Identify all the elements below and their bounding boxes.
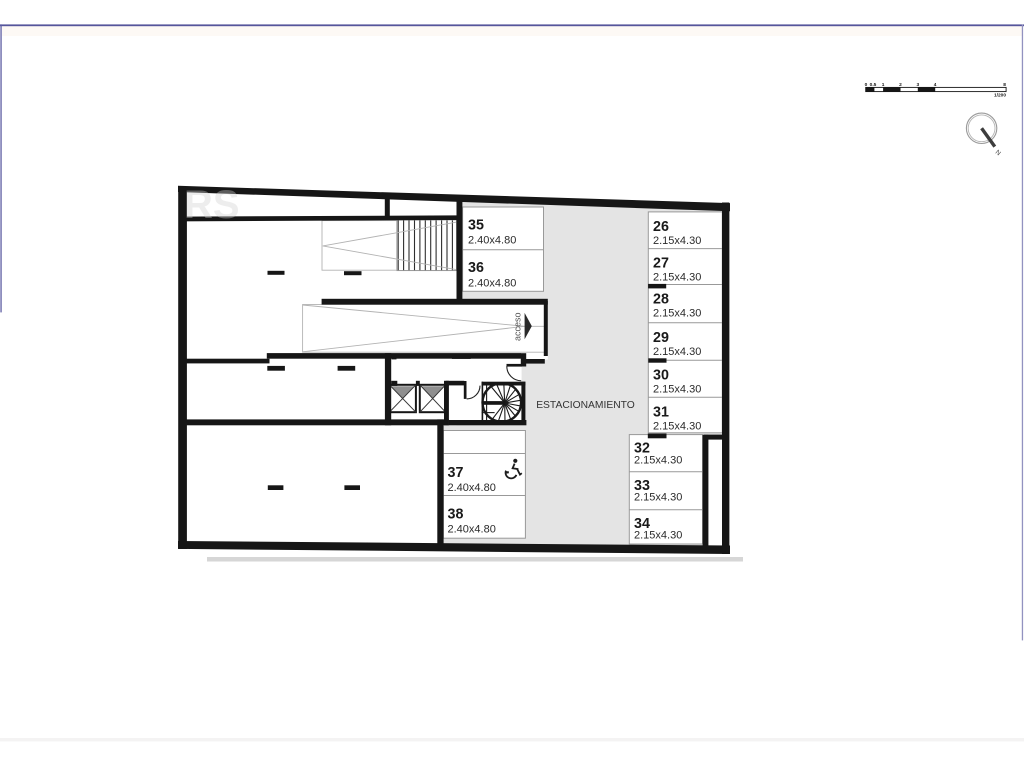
svg-text:26: 26 [653, 219, 669, 235]
svg-text:29: 29 [653, 330, 669, 346]
svg-text:27: 27 [653, 256, 669, 272]
svg-text:35: 35 [468, 217, 484, 233]
svg-text:RS: RS [184, 183, 240, 227]
svg-text:2.15x4.30: 2.15x4.30 [653, 383, 701, 395]
svg-text:38: 38 [448, 507, 464, 523]
svg-text:31: 31 [653, 404, 669, 420]
svg-text:2.40x4.80: 2.40x4.80 [468, 235, 516, 247]
svg-text:2: 2 [899, 82, 902, 88]
svg-text:2.15x4.30: 2.15x4.30 [634, 530, 682, 542]
svg-text:0: 0 [865, 82, 868, 88]
svg-text:0.5: 0.5 [870, 82, 877, 88]
svg-text:2.15x4.30: 2.15x4.30 [653, 346, 701, 358]
svg-text:2.15x4.30: 2.15x4.30 [653, 420, 701, 432]
svg-text:ESTACIONAMIENTO: ESTACIONAMIENTO [536, 400, 635, 411]
svg-text:2.15x4.30: 2.15x4.30 [653, 272, 701, 284]
svg-text:2.15x4.30: 2.15x4.30 [653, 308, 701, 320]
svg-text:37: 37 [448, 465, 464, 481]
svg-text:8: 8 [1003, 82, 1006, 88]
svg-text:2.15x4.30: 2.15x4.30 [634, 492, 682, 504]
svg-text:2.15x4.30: 2.15x4.30 [634, 454, 682, 466]
svg-text:2.40x4.80: 2.40x4.80 [448, 482, 496, 494]
svg-text:2.15x4.30: 2.15x4.30 [653, 235, 701, 247]
svg-text:36: 36 [468, 260, 484, 276]
svg-text:4: 4 [934, 82, 937, 88]
svg-text:2.40x4.80: 2.40x4.80 [448, 524, 496, 536]
svg-text:acceso: acceso [513, 312, 523, 341]
svg-text:2.40x4.80: 2.40x4.80 [468, 277, 516, 289]
svg-text:30: 30 [653, 367, 669, 383]
svg-text:3: 3 [916, 82, 919, 88]
svg-text:28: 28 [653, 292, 669, 308]
svg-text:1: 1 [882, 82, 885, 88]
svg-text:1/200: 1/200 [994, 93, 1006, 99]
